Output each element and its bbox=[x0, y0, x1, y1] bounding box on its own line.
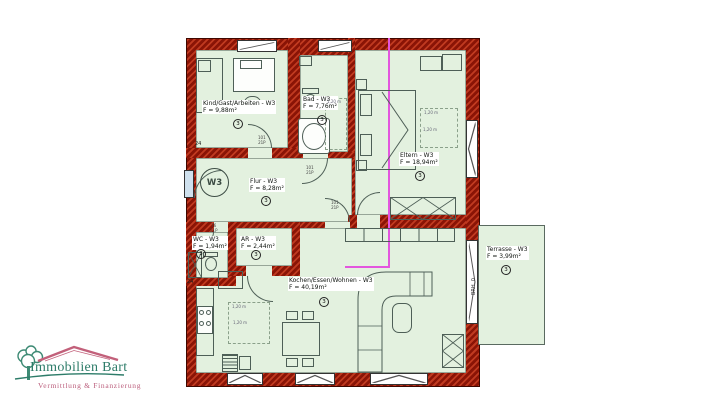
burner bbox=[206, 321, 211, 326]
door-gap-kind bbox=[248, 148, 272, 158]
entry-sidelight-window bbox=[184, 170, 194, 198]
room-number: 3 bbox=[261, 196, 271, 206]
room-label-kind: Kind/Gast/Arbeiten - W3 F = 9,88m² bbox=[202, 100, 276, 114]
window-top-1 bbox=[237, 40, 277, 52]
dishwasher bbox=[222, 354, 238, 372]
bathtub-basin bbox=[302, 123, 326, 150]
door-tag-wc: 76 21P bbox=[210, 224, 218, 233]
room-number: 3 bbox=[196, 249, 206, 259]
nightstand bbox=[356, 79, 367, 90]
room-name: Kochen/Essen/Wohnen - W3 bbox=[289, 277, 373, 284]
dresser bbox=[442, 54, 462, 71]
room-name: Eltern - W3 bbox=[400, 152, 438, 159]
door-gap-eltern bbox=[357, 215, 380, 228]
room-area: F = 3,99m² bbox=[487, 253, 528, 260]
room-label-ar: AR - W3 F = 2,44m² bbox=[240, 236, 276, 250]
room-label-wc: WC - W3 F = 1,94m² bbox=[192, 236, 228, 250]
grid-dim-label: 1,20 m bbox=[233, 320, 247, 325]
terrace-area bbox=[478, 225, 545, 345]
unit-badge-w3: W3 bbox=[200, 168, 229, 197]
chair bbox=[302, 311, 314, 320]
section-line-horizontal bbox=[345, 266, 390, 268]
grid-dim-label: 1,20 m bbox=[232, 304, 246, 309]
shelf-crossed bbox=[442, 334, 464, 368]
pillow bbox=[360, 134, 372, 156]
room-number: 3 bbox=[415, 171, 425, 181]
room-number: 3 bbox=[501, 265, 511, 275]
room-label-terrasse: Terrasse - W3 F = 3,99m² bbox=[486, 246, 529, 260]
sink-cabinet bbox=[239, 356, 251, 370]
chair bbox=[286, 311, 298, 320]
grid-dim-label: 1,20 m bbox=[424, 110, 438, 115]
wall-bad-eltern bbox=[348, 38, 355, 158]
coffee-table bbox=[392, 303, 412, 333]
burner bbox=[199, 321, 204, 326]
room-area: F = 9,88m² bbox=[203, 107, 275, 114]
room-name: Kind/Gast/Arbeiten - W3 bbox=[203, 100, 275, 107]
room-name: AR - W3 bbox=[241, 236, 275, 243]
door-tag: 101 21P bbox=[331, 201, 339, 210]
room-name: Flur - W3 bbox=[250, 178, 284, 185]
room-number: 3 bbox=[319, 297, 329, 307]
dimension-24-top: 24 bbox=[195, 141, 201, 147]
burner bbox=[199, 310, 204, 315]
room-number: 3 bbox=[233, 119, 243, 129]
wall-flur-top-left bbox=[186, 148, 300, 158]
pillow bbox=[360, 94, 372, 116]
room-name: Terrasse - W3 bbox=[487, 246, 528, 253]
brh-annotation: BRH..0 bbox=[471, 278, 477, 295]
room-area: F = 18,94m² bbox=[400, 159, 438, 166]
burner bbox=[206, 310, 211, 315]
chair bbox=[302, 358, 314, 367]
room-area: F = 2,44m² bbox=[241, 243, 275, 250]
window-eltern-east bbox=[466, 120, 478, 178]
sideboard bbox=[345, 228, 455, 242]
chair bbox=[286, 358, 298, 367]
door-tag: 101 21P bbox=[258, 136, 266, 145]
logo-tagline: Vermittlung & Finanzierung bbox=[38, 381, 141, 390]
toilet-bowl bbox=[205, 257, 217, 271]
door-tag: 101 21P bbox=[306, 166, 314, 175]
fridge-cabinet bbox=[218, 271, 243, 289]
room-number: 3 bbox=[317, 115, 327, 125]
room-name: WC - W3 bbox=[193, 236, 227, 243]
room-area: F = 8,28m² bbox=[250, 185, 284, 192]
logo-company-name: Immobilien Bart bbox=[30, 360, 127, 376]
wardrobe-crossed bbox=[390, 197, 456, 220]
door-gap-ar bbox=[246, 266, 272, 276]
window-bottom-1 bbox=[227, 373, 263, 385]
grid-dim-label: 1,20 m bbox=[327, 99, 341, 104]
dimension-24-bottom: 24 bbox=[187, 279, 193, 285]
window-top-2 bbox=[318, 40, 352, 52]
room-label-wohnen: Kochen/Essen/Wohnen - W3 F = 40,19m² bbox=[288, 277, 374, 291]
dresser bbox=[420, 56, 442, 71]
room-label-eltern: Eltern - W3 F = 18,94m² bbox=[399, 152, 439, 166]
page-canvas: BRH..0 bbox=[0, 0, 720, 405]
window-bottom-2 bbox=[295, 373, 335, 385]
room-area: F = 7,76m² bbox=[303, 103, 337, 110]
monitor bbox=[240, 60, 262, 69]
room-number: 3 bbox=[251, 250, 261, 260]
pillow bbox=[198, 60, 211, 72]
dining-table bbox=[282, 322, 320, 356]
bathroom-sink bbox=[299, 56, 312, 66]
room-area: F = 40,19m² bbox=[289, 284, 373, 291]
grid-dim-label: 1,20 m bbox=[423, 127, 437, 132]
window-bottom-3 bbox=[370, 373, 428, 385]
room-label-flur: Flur - W3 F = 8,28m² bbox=[249, 178, 285, 192]
